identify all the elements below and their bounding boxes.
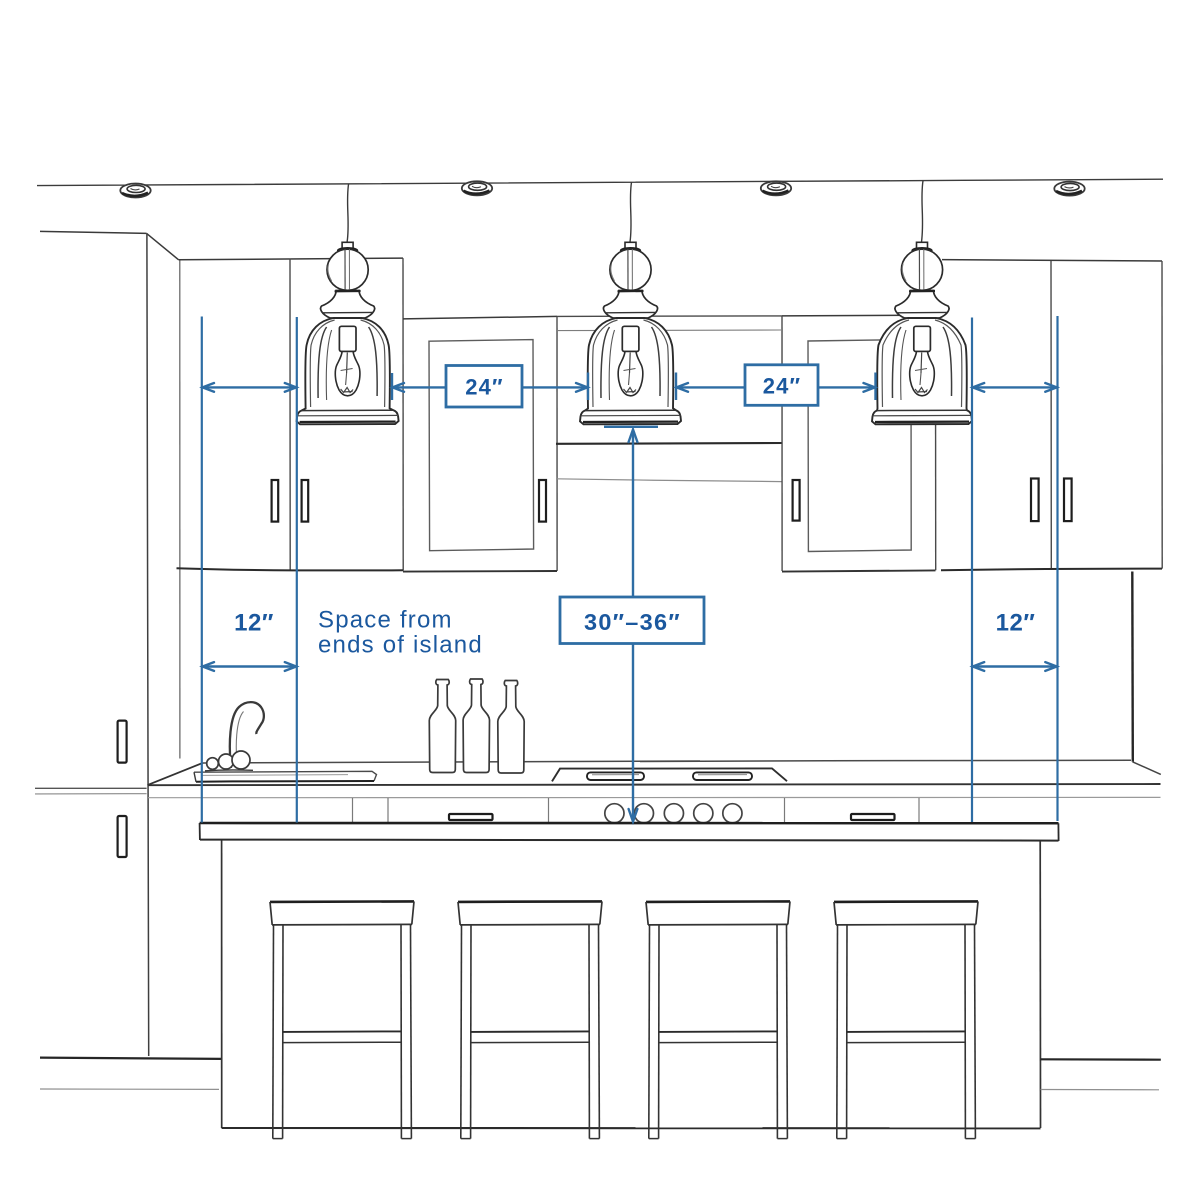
- svg-text:12″: 12″: [234, 610, 274, 637]
- svg-text:24″: 24″: [465, 374, 504, 399]
- svg-text:24″: 24″: [763, 373, 802, 398]
- svg-text:ends of island: ends of island: [318, 632, 483, 659]
- svg-text:12″: 12″: [996, 610, 1036, 637]
- svg-text:30″–36″: 30″–36″: [584, 609, 681, 635]
- svg-text:Space from: Space from: [318, 607, 453, 634]
